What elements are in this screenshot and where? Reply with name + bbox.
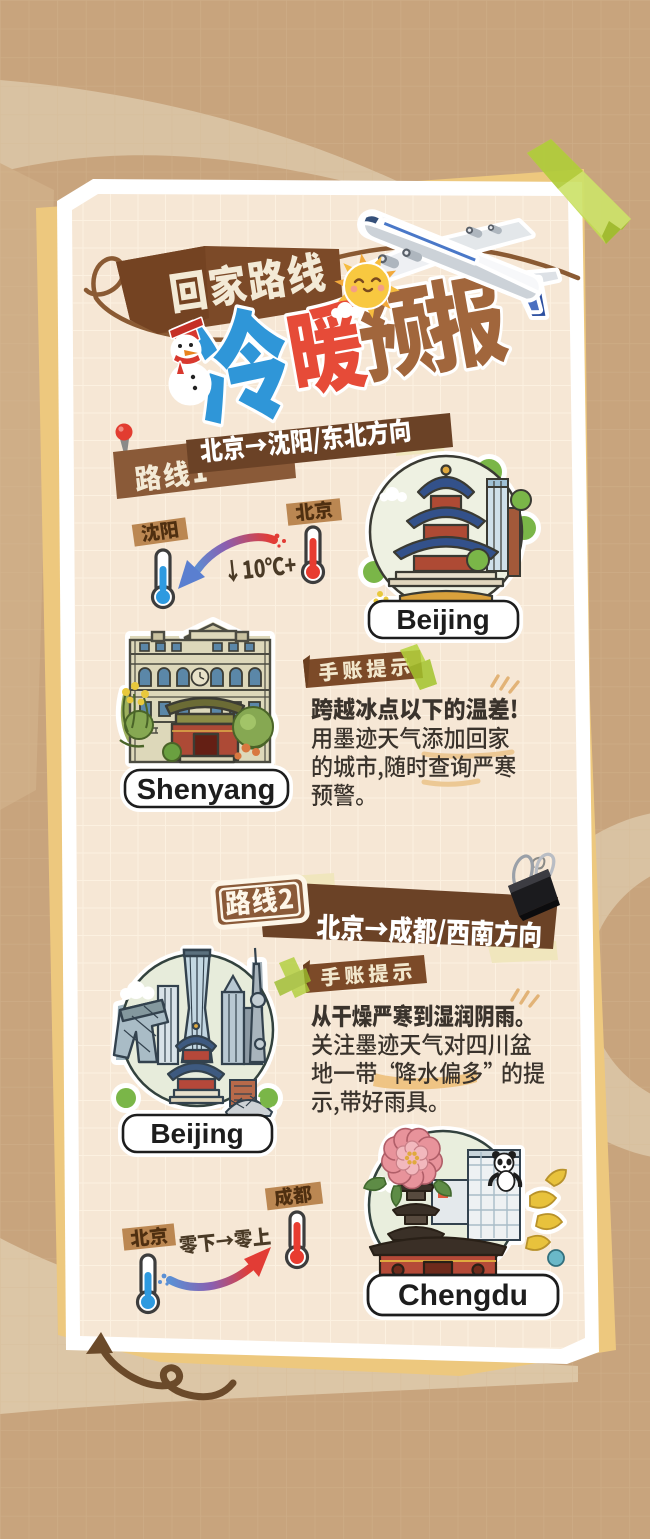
svg-text:Beijing: Beijing: [150, 1118, 243, 1149]
svg-text:Shenyang: Shenyang: [137, 774, 276, 806]
svg-text:Chengdu: Chengdu: [398, 1279, 528, 1312]
svg-text:Beijing: Beijing: [396, 604, 489, 635]
